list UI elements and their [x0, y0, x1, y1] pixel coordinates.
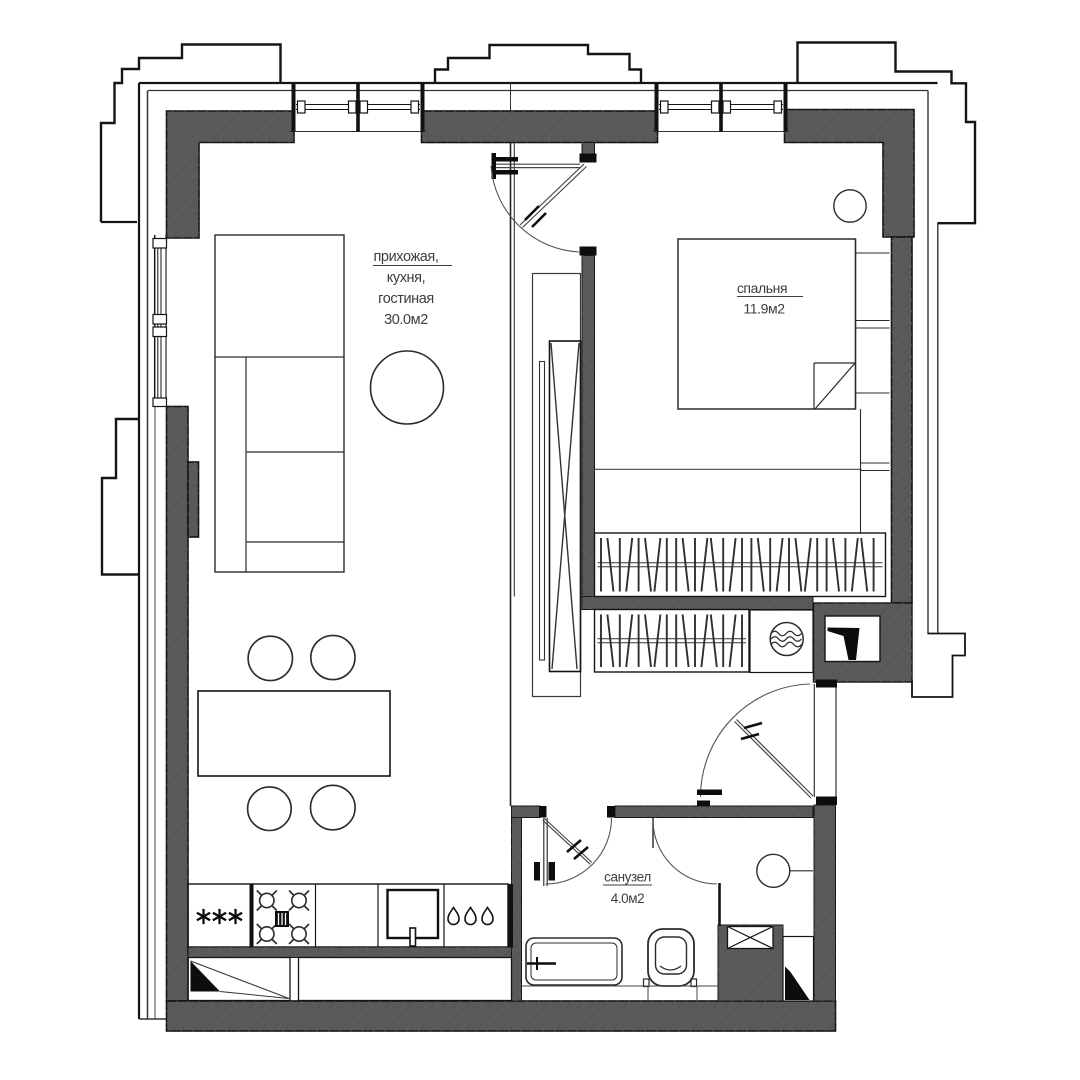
- svg-text:прихожая,: прихожая,: [373, 249, 438, 265]
- svg-text:30.0м2: 30.0м2: [384, 312, 428, 328]
- svg-text:4.0м2: 4.0м2: [611, 891, 645, 906]
- svg-text:спальня: спальня: [737, 280, 787, 296]
- svg-text:11.9м2: 11.9м2: [743, 301, 785, 317]
- svg-text:кухня,: кухня,: [387, 270, 426, 286]
- svg-text:санузел: санузел: [604, 870, 651, 885]
- svg-text:гостиная: гостиная: [378, 291, 434, 307]
